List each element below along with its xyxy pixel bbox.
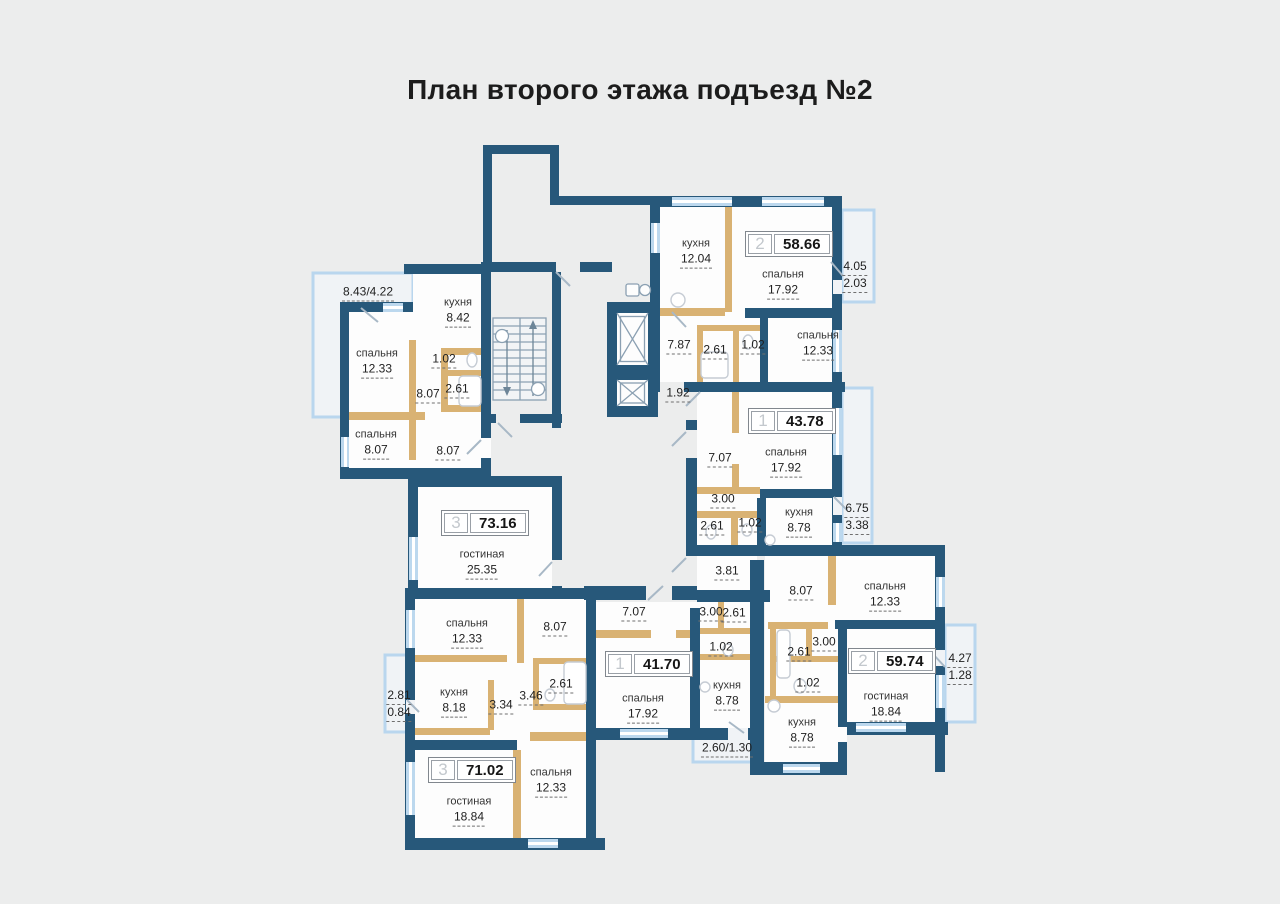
dim-label: 2.61 (548, 677, 573, 694)
room-label-living: гостиная18.84 (864, 691, 909, 722)
room-label-bedroom: спальня12.33 (797, 330, 839, 361)
room-label-bedroom: спальня17.92 (762, 269, 804, 300)
apartment-badge-41: 1 41.70 (605, 651, 693, 677)
dim-label: 7.07 (621, 605, 646, 622)
room-label-kitchen: кухня12.04 (680, 238, 712, 269)
floor-plan-drawing (0, 0, 1280, 904)
dim-label: 2.61 (721, 606, 746, 623)
room-label-bedroom: спальня12.33 (356, 348, 398, 379)
apartment-badge-58: 2 58.66 (745, 231, 833, 257)
dim-label: 1.02 (795, 676, 820, 693)
apartment-badge-73: 3 73.16 (441, 510, 529, 536)
room-label-bedroom: спальня12.33 (864, 581, 906, 612)
balcony-label: 6.753.38 (844, 501, 869, 535)
room-label-kitchen: кухня8.78 (713, 680, 741, 711)
dim-label: 3.00 (710, 492, 735, 509)
stove-icon (765, 535, 775, 545)
balcony-label: 4.052.03 (842, 259, 867, 293)
stove-icon (671, 293, 685, 307)
dim-label: 7.87 (666, 338, 691, 355)
dim-label: 3.00 (698, 605, 723, 622)
dim-label: 1.02 (737, 516, 762, 533)
badge-rooms-count: 3 (431, 760, 455, 780)
badge-rooms-count: 2 (748, 234, 772, 254)
dim-label: 3.81 (714, 564, 739, 581)
balcony-label: 2.810.84 (386, 688, 411, 722)
elevator-icon (617, 313, 648, 406)
dim-label: 3.46 (518, 689, 543, 706)
badge-area: 59.74 (877, 651, 933, 671)
badge-area: 71.02 (457, 760, 513, 780)
room-label-bedroom: спальня8.07 (355, 429, 397, 460)
dim-label: 2.61 (699, 519, 724, 536)
dim-label: 3.00 (811, 635, 836, 652)
room-label-bedroom: спальня12.33 (530, 767, 572, 798)
dim-label: 8.07 (415, 387, 440, 404)
badge-area: 41.70 (634, 654, 690, 674)
room-label-kitchen: кухня8.42 (444, 297, 472, 328)
dim-label: 2.61 (702, 343, 727, 360)
stairs-icon (493, 318, 546, 400)
apartment-badge-43: 1 43.78 (748, 408, 836, 434)
toilet-icon (467, 353, 477, 367)
balcony-label: 4.271.28 (947, 651, 972, 685)
plan-title: План второго этажа подъезд №2 (407, 74, 873, 106)
room-label-bedroom: спальня17.92 (765, 447, 807, 478)
balcony-label: 2.60/1.30 (701, 741, 753, 758)
stove-icon (700, 682, 710, 692)
badge-rooms-count: 3 (444, 513, 468, 533)
badge-area: 73.16 (470, 513, 526, 533)
dim-label: 8.07 (542, 620, 567, 637)
dim-label: 1.02 (740, 338, 765, 355)
apartment-badge-59: 2 59.74 (848, 648, 936, 674)
room-label-living: гостиная18.84 (447, 796, 492, 827)
balcony-label: 8.43/4.22 (342, 285, 394, 302)
floor-plan: План второго этажа подъезд №2 3 73.16 2 … (0, 0, 1280, 904)
dim-label: 2.61 (786, 645, 811, 662)
dim-label: 3.34 (488, 698, 513, 715)
apartment-badge-71: 3 71.02 (428, 757, 516, 783)
room-label-living: гостиная25.35 (460, 549, 505, 580)
dim-label: 7.07 (707, 451, 732, 468)
dim-label: 8.07 (435, 444, 460, 461)
dim-label: 8.07 (788, 584, 813, 601)
dim-label: 1.02 (431, 352, 456, 369)
room-label-bedroom: спальня17.92 (622, 693, 664, 724)
badge-area: 58.66 (774, 234, 830, 254)
room-label-kitchen: кухня8.18 (440, 687, 468, 718)
dim-label: 1.02 (708, 640, 733, 657)
badge-rooms-count: 1 (608, 654, 632, 674)
badge-area: 43.78 (777, 411, 833, 431)
garbage-chute-icon (626, 284, 651, 296)
dim-label: 1.92 (665, 386, 690, 403)
stove-icon (768, 700, 780, 712)
dim-label: 2.61 (444, 382, 469, 399)
badge-rooms-count: 1 (751, 411, 775, 431)
room-label-kitchen: кухня8.78 (788, 717, 816, 748)
room-label-kitchen: кухня8.78 (785, 507, 813, 538)
badge-rooms-count: 2 (851, 651, 875, 671)
room-label-bedroom: спальня12.33 (446, 618, 488, 649)
